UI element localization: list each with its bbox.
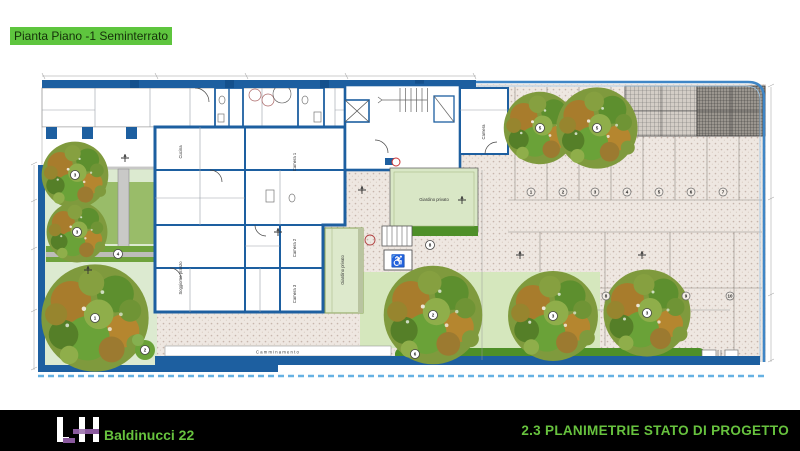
grating-ramp-zone bbox=[625, 86, 765, 136]
lh-logo bbox=[55, 416, 101, 446]
project-name: Baldinucci 22 bbox=[104, 427, 194, 443]
label-soggiorno: Soggiorno pranzo bbox=[178, 261, 183, 295]
label-camminamento: Camminamento bbox=[256, 350, 300, 355]
label-cucina: Cucina bbox=[178, 145, 183, 159]
garden-path-vertical bbox=[118, 169, 129, 249]
label-camera1: Camera 1 bbox=[292, 152, 297, 171]
label-camera: Camera bbox=[481, 124, 486, 140]
floor-plan-drawing: ♿ 3 3 1 2 bbox=[30, 70, 775, 385]
building-main-wing bbox=[155, 127, 345, 312]
footer-bar: Baldinucci 22 2.3 PLANIMETRIE STATO DI P… bbox=[0, 410, 800, 451]
label-giardino-rect: Giardino privato bbox=[419, 197, 449, 202]
building-right-rooms bbox=[460, 88, 508, 154]
left-wall-band bbox=[38, 165, 45, 372]
label-giardino-strip: Giardino privato bbox=[340, 255, 345, 285]
stair-elevator-core bbox=[345, 85, 460, 170]
label-camera3: Camera 3 bbox=[292, 284, 297, 303]
label-camera2: Camera 2 bbox=[292, 238, 297, 257]
svg-text:10: 10 bbox=[727, 294, 733, 299]
wheelchair-icon: ♿ bbox=[391, 254, 406, 268]
floor-plan-svg: ♿ 3 3 1 2 bbox=[30, 70, 775, 385]
sheet-title: 2.3 PLANIMETRIE STATO DI PROGETTO bbox=[521, 423, 789, 438]
page-title: Pianta Piano -1 Seminterrato bbox=[10, 27, 172, 45]
